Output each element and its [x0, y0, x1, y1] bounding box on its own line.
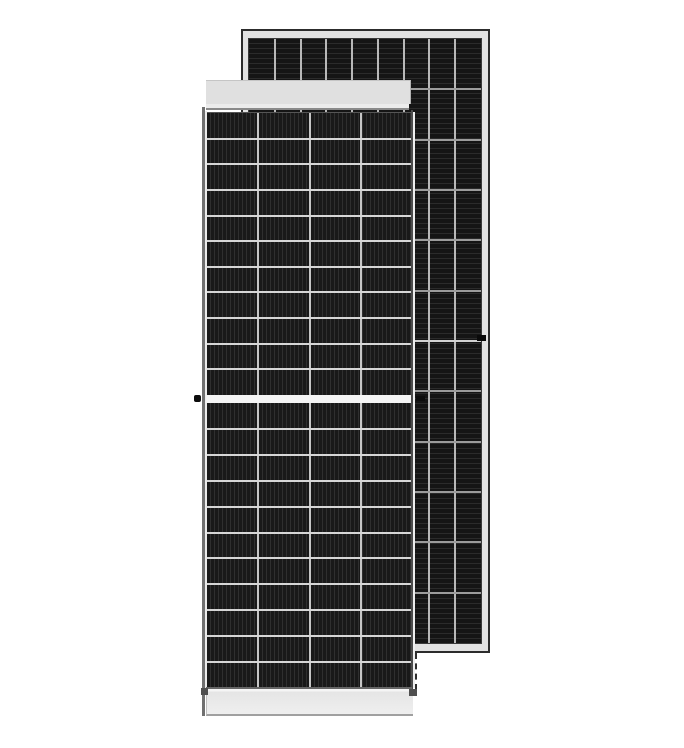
cell-row-divider: [207, 240, 412, 242]
front-panel-cell-grid-upper: [207, 112, 412, 395]
cell-row-divider: [207, 557, 412, 559]
front-panel-cell-grid-lower: [207, 403, 412, 688]
cell-row-divider: [207, 635, 412, 637]
cell-row-divider: [207, 609, 412, 611]
cell-row-divider: [207, 266, 412, 268]
cell-column-divider: [309, 113, 311, 395]
cell-row-divider: [207, 454, 412, 456]
front-panel-center-gap: [206, 395, 414, 403]
front-grounding-lug-left-icon: [194, 395, 201, 402]
cell-column-divider: [309, 403, 311, 688]
front-solar-panel: [0, 0, 684, 748]
cell-column-divider: [257, 403, 259, 688]
front-panel-bottom-right-corner-notch: [409, 689, 417, 696]
front-panel-top-rail-step: [206, 104, 409, 110]
cell-column-divider: [257, 113, 259, 395]
product-image: [0, 0, 684, 748]
cell-row-divider: [207, 138, 412, 140]
cell-row-divider: [207, 532, 412, 534]
cell-row-divider: [207, 583, 412, 585]
cell-row-divider: [207, 480, 412, 482]
cell-row-divider: [207, 506, 412, 508]
cell-row-divider: [207, 291, 412, 293]
cell-row-divider: [207, 661, 412, 663]
cell-column-divider: [360, 403, 362, 688]
front-panel-bottom-rail: [206, 689, 413, 716]
front-panel-top-rail: [206, 80, 411, 104]
front-grounding-lug-right-icon: [416, 396, 425, 401]
cell-row-divider: [207, 428, 412, 430]
cell-row-divider: [207, 163, 412, 165]
cell-row-divider: [207, 343, 412, 345]
cell-column-divider: [360, 113, 362, 395]
cell-row-divider: [207, 189, 412, 191]
front-panel-right-frame-outer: [413, 112, 415, 688]
cell-row-divider: [207, 368, 412, 370]
front-panel-bottom-left-corner-notch: [201, 688, 208, 695]
cell-row-divider: [207, 317, 412, 319]
front-panel-frame-dashed-edge: [413, 653, 417, 690]
cell-row-divider: [207, 215, 412, 217]
